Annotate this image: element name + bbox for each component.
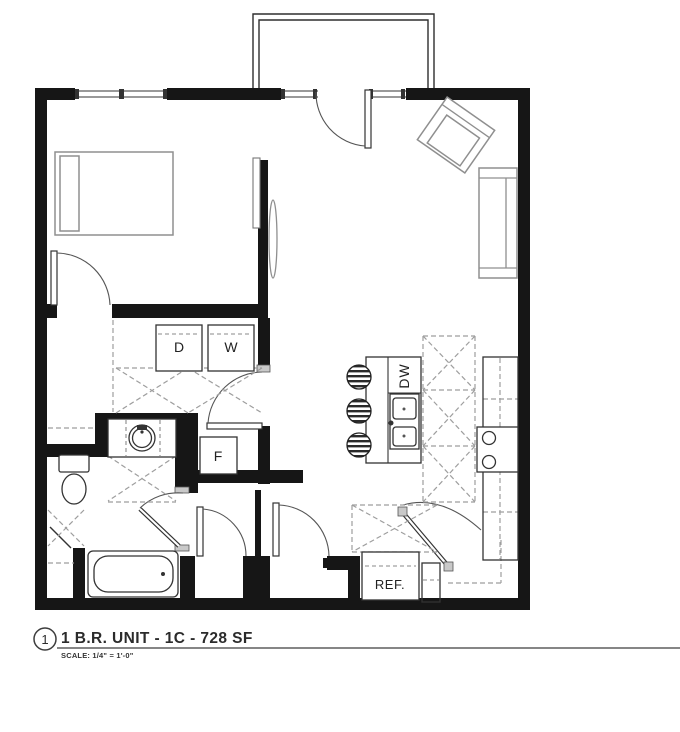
plan-title: 1 B.R. UNIT - 1C - 728 SF (61, 630, 253, 647)
floor-plan-sheet: D W F (0, 0, 680, 732)
hall-closet-door-right (273, 503, 329, 556)
sheet-number: 1 (41, 632, 48, 647)
bed-headboard (60, 156, 79, 231)
cooktop-range (477, 427, 518, 472)
narrow-cabinet (422, 563, 440, 602)
sink-faucet (137, 425, 147, 430)
furnace-label: F (214, 448, 223, 464)
bar-stool (347, 365, 371, 389)
dishwasher-label: DW (396, 363, 412, 388)
refrigerator-label: REF. (375, 577, 405, 592)
entry-balcony-door (316, 88, 371, 148)
scale-note: SCALE: 1/4" = 1'-0" (61, 651, 134, 660)
balcony-outline (253, 14, 434, 90)
dryer-label: D (174, 339, 184, 355)
bathtub (88, 551, 178, 597)
armchair (417, 97, 494, 173)
sofa (479, 168, 517, 278)
living-window-right (369, 88, 406, 100)
title-block: 1 1 B.R. UNIT - 1C - 728 SF SCALE: 1/4" … (34, 628, 680, 660)
bed (55, 152, 173, 235)
kitchen-wall-counter (477, 357, 518, 560)
floor-plan-drawing: D W F (0, 0, 680, 732)
washer-label: W (224, 339, 238, 355)
kitchen-island: DW (366, 357, 421, 463)
laundry-closet-door (207, 365, 270, 429)
hall-closet-door-left (197, 507, 246, 556)
bar-stools (347, 365, 371, 457)
bar-stool (347, 433, 371, 457)
wall-shelf-niche (253, 158, 260, 228)
island-sink (389, 394, 420, 449)
bathroom-vanity (108, 419, 176, 457)
wall-tv (269, 200, 277, 278)
bathroom-door (140, 487, 189, 551)
tub-drain (161, 572, 165, 576)
bedroom-door (51, 251, 110, 305)
bar-stool (347, 399, 371, 423)
bedroom-window (75, 88, 167, 100)
refrigerator: REF. (362, 552, 419, 600)
toilet (59, 455, 89, 504)
living-window-left (281, 88, 318, 100)
